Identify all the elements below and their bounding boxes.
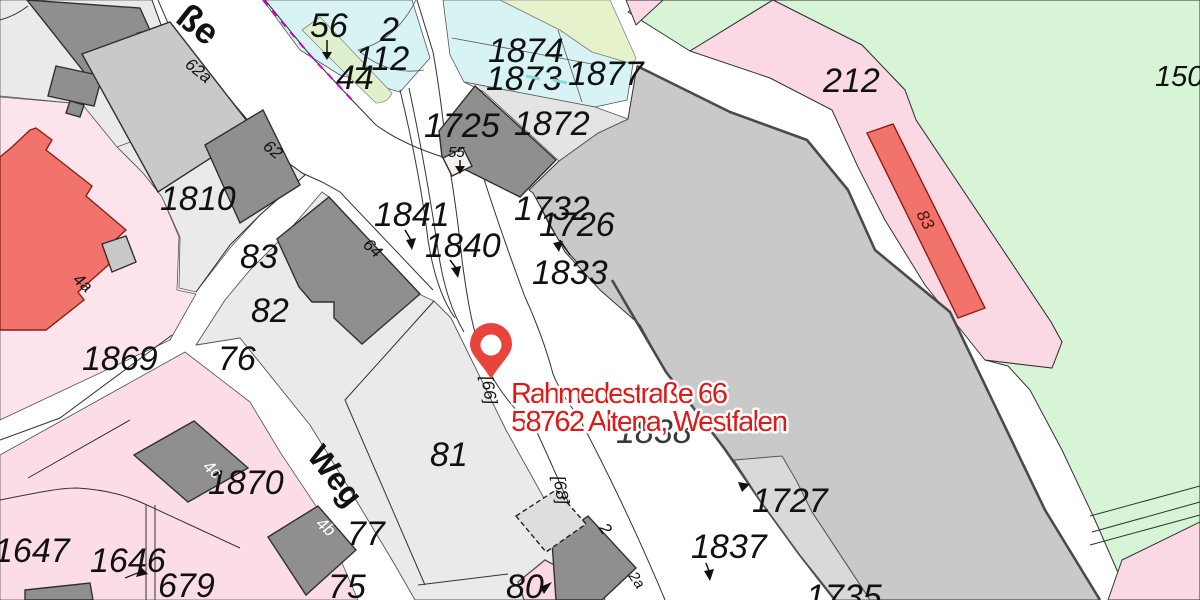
- svg-text:1810: 1810: [160, 180, 236, 218]
- svg-text:1727: 1727: [752, 482, 829, 520]
- svg-text:679: 679: [158, 567, 215, 600]
- svg-text:212: 212: [822, 62, 880, 100]
- svg-text:1505: 1505: [1155, 61, 1200, 93]
- svg-text:83: 83: [240, 238, 278, 276]
- svg-text:1646: 1646: [90, 542, 166, 580]
- svg-text:1725: 1725: [424, 107, 500, 145]
- svg-text:1833: 1833: [532, 254, 608, 292]
- svg-text:1877: 1877: [568, 55, 645, 93]
- svg-text:44: 44: [336, 59, 374, 97]
- svg-text:1726: 1726: [539, 206, 615, 244]
- svg-text:1869: 1869: [82, 340, 158, 378]
- svg-text:82: 82: [251, 292, 289, 330]
- svg-text:75: 75: [328, 568, 366, 600]
- svg-text:58762 Altena, Westfalen: 58762 Altena, Westfalen: [511, 406, 788, 438]
- svg-text:1837: 1837: [691, 528, 768, 566]
- svg-text:56: 56: [310, 7, 348, 45]
- svg-text:1873: 1873: [486, 60, 562, 98]
- svg-text:77: 77: [347, 515, 386, 553]
- svg-text:55: 55: [448, 144, 465, 161]
- svg-text:1872: 1872: [514, 105, 590, 143]
- svg-text:76: 76: [218, 340, 256, 378]
- svg-text:80: 80: [506, 568, 544, 600]
- svg-text:1735: 1735: [806, 578, 882, 600]
- svg-text:1647: 1647: [0, 532, 71, 570]
- svg-text:1840: 1840: [425, 227, 501, 265]
- svg-text:81: 81: [430, 436, 468, 474]
